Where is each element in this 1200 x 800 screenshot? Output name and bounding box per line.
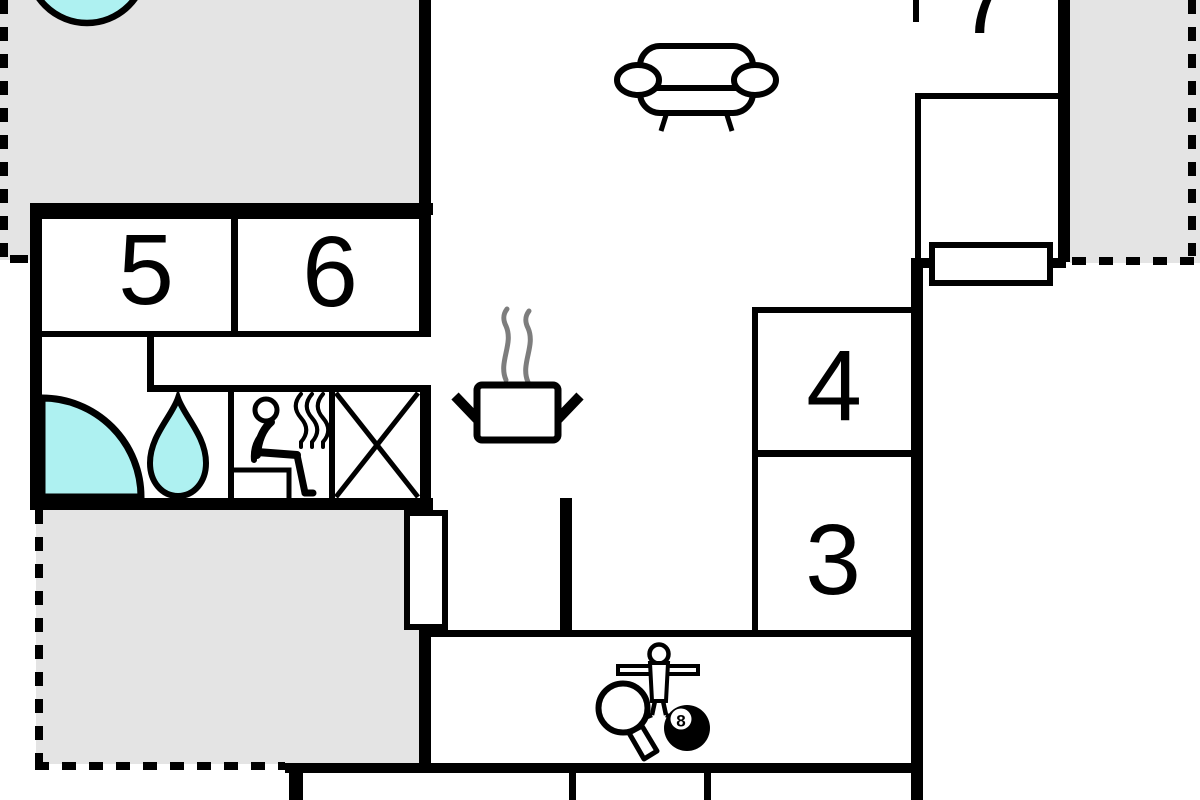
- room-3-label: 3: [783, 510, 883, 610]
- water-drop-icon: [150, 398, 206, 496]
- room-4-label: 4: [784, 336, 884, 436]
- eight-ball-number: 8: [676, 712, 685, 731]
- table-tennis-paddle-icon: [599, 684, 658, 760]
- billiard-8-ball-icon: 8: [664, 705, 710, 751]
- floor-plan: 8 5 6 7 4 3: [0, 0, 1200, 800]
- cooking-pot-icon: [455, 385, 580, 440]
- hot-tub-icon: [28, 0, 146, 23]
- heat-waves-icon: [296, 394, 329, 447]
- sofa-icon: [617, 46, 776, 131]
- crossed-box-icon: [336, 393, 418, 497]
- room-7-label: 7: [935, 0, 1035, 49]
- room-5-label: 5: [96, 220, 196, 320]
- icon-layer: 8: [0, 0, 1200, 800]
- shower-quarter-circle-icon: [42, 398, 141, 497]
- steam-icon: [504, 309, 531, 382]
- room-6-label: 6: [280, 222, 380, 322]
- sauna-person-icon: [233, 399, 313, 502]
